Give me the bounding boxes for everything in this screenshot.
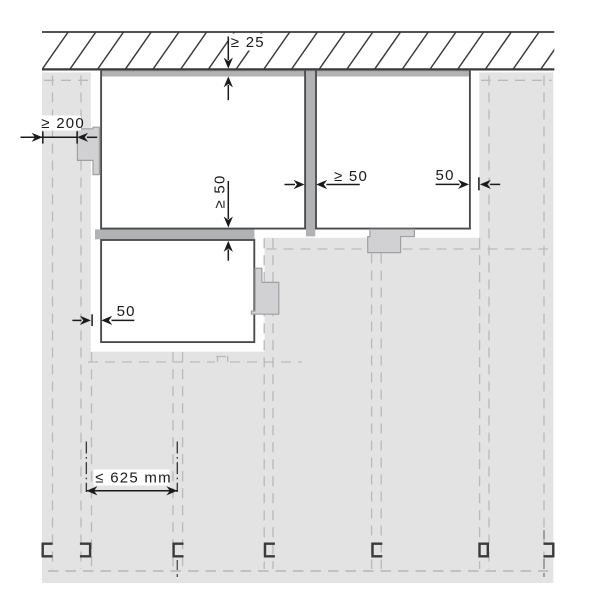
svg-text:50: 50 [117,303,136,320]
svg-text:≥ 50: ≥ 50 [212,174,229,208]
svg-text:50: 50 [436,167,455,184]
svg-text:≥ 25: ≥ 25 [231,34,265,51]
svg-text:≥ 200: ≥ 200 [41,115,85,132]
svg-text:≤ 625 mm: ≤ 625 mm [95,470,172,487]
svg-text:≥ 50: ≥ 50 [334,168,368,185]
